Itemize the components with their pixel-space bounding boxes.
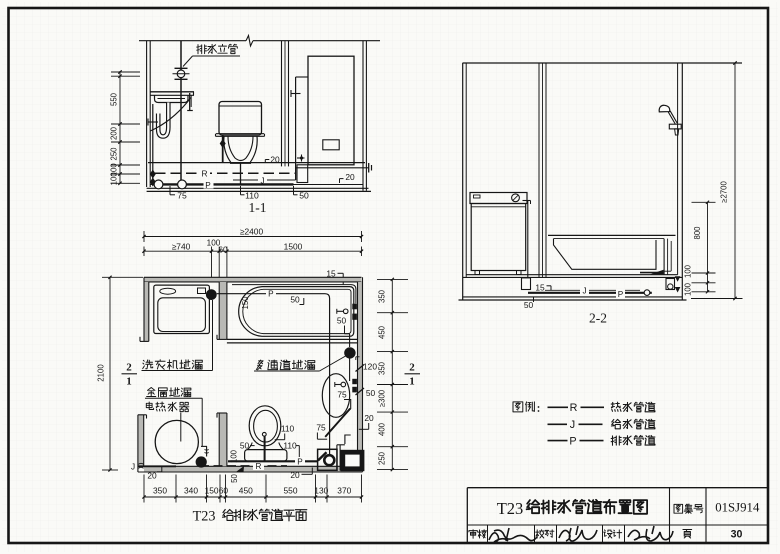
svg-text:≥300: ≥300 xyxy=(378,389,387,407)
svg-text:130: 130 xyxy=(314,486,328,496)
svg-text:T23: T23 xyxy=(497,499,524,518)
svg-text:01SJ914: 01SJ914 xyxy=(715,501,760,515)
svg-text:150: 150 xyxy=(205,486,219,496)
svg-text:R: R xyxy=(256,462,262,471)
svg-text:350: 350 xyxy=(153,486,167,496)
svg-text:50: 50 xyxy=(230,474,239,483)
svg-text:450: 450 xyxy=(378,325,387,339)
svg-text:J: J xyxy=(131,462,135,471)
svg-text:2: 2 xyxy=(409,362,415,374)
svg-text:50: 50 xyxy=(299,191,309,201)
svg-text:250: 250 xyxy=(378,451,387,465)
svg-text:150: 150 xyxy=(241,296,250,310)
svg-text:60: 60 xyxy=(219,486,229,496)
svg-text:J: J xyxy=(582,286,586,295)
svg-text:≥740: ≥740 xyxy=(172,242,191,252)
svg-text:350: 350 xyxy=(378,361,387,375)
svg-text:50: 50 xyxy=(366,388,376,398)
svg-text:15: 15 xyxy=(535,282,545,292)
svg-text:100: 100 xyxy=(110,172,119,186)
svg-text:200: 200 xyxy=(110,126,119,140)
svg-text:20: 20 xyxy=(270,155,280,165)
svg-text:75: 75 xyxy=(316,422,326,432)
svg-text:P: P xyxy=(297,458,303,467)
svg-text:800: 800 xyxy=(693,226,702,240)
svg-text:1-1: 1-1 xyxy=(249,200,267,215)
svg-text:2: 2 xyxy=(126,362,132,374)
svg-text:110: 110 xyxy=(281,424,295,434)
svg-text:550: 550 xyxy=(284,486,298,496)
svg-text:P: P xyxy=(205,181,211,190)
svg-text:J: J xyxy=(570,419,575,431)
svg-text:110: 110 xyxy=(283,441,297,451)
svg-text:2100: 2100 xyxy=(97,364,106,382)
svg-text:400: 400 xyxy=(378,422,387,436)
svg-text:60: 60 xyxy=(218,246,228,255)
svg-text:R: R xyxy=(201,169,207,179)
svg-text:2-2: 2-2 xyxy=(589,311,607,326)
svg-text:350: 350 xyxy=(378,289,387,303)
svg-text:P: P xyxy=(618,290,624,299)
svg-text:1500: 1500 xyxy=(284,242,303,252)
svg-text:50: 50 xyxy=(240,441,250,451)
svg-text:≥2700: ≥2700 xyxy=(720,181,729,203)
svg-text:370: 370 xyxy=(337,486,351,496)
svg-text:20: 20 xyxy=(345,172,355,182)
svg-text:250: 250 xyxy=(110,147,119,161)
svg-text:340: 340 xyxy=(184,486,198,496)
svg-text:450: 450 xyxy=(239,486,253,496)
svg-text:100: 100 xyxy=(684,264,693,278)
svg-text:50: 50 xyxy=(290,295,300,305)
svg-text:R: R xyxy=(570,402,578,414)
svg-text:≥2400: ≥2400 xyxy=(240,227,264,237)
svg-text:20: 20 xyxy=(147,471,157,481)
svg-text:P: P xyxy=(268,290,274,299)
svg-text:75: 75 xyxy=(337,390,347,400)
svg-text:110: 110 xyxy=(245,191,259,201)
svg-text:30: 30 xyxy=(731,529,743,541)
svg-text:1: 1 xyxy=(126,376,132,388)
svg-text:1: 1 xyxy=(409,376,415,388)
svg-text:50: 50 xyxy=(337,315,347,325)
svg-text:P: P xyxy=(569,436,576,448)
svg-text:T23: T23 xyxy=(193,509,216,525)
svg-text:100: 100 xyxy=(684,282,693,296)
svg-text:550: 550 xyxy=(110,92,119,106)
svg-text:50: 50 xyxy=(524,300,534,310)
svg-text:20: 20 xyxy=(290,470,300,480)
svg-text:120: 120 xyxy=(363,361,377,371)
svg-text:75: 75 xyxy=(177,191,187,201)
svg-text:20: 20 xyxy=(364,413,374,423)
